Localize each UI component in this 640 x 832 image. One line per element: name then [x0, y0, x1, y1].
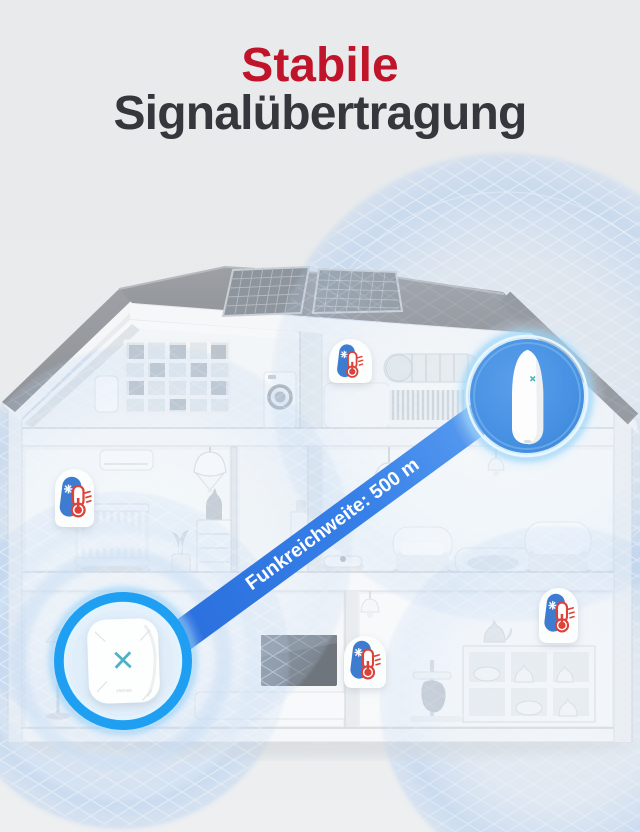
svg-text:Signalübertragung: Signalübertragung [113, 87, 526, 140]
svg-text:Stabile: Stabile [241, 39, 398, 92]
svg-text:xsense: xsense [116, 688, 132, 695]
